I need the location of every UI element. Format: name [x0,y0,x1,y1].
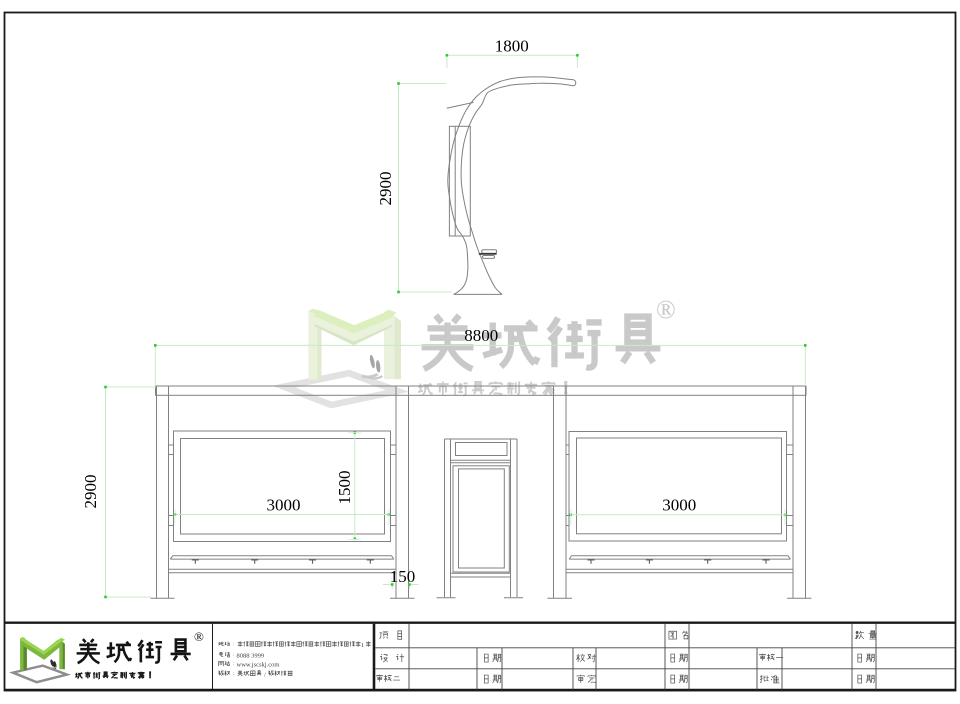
svg-text:www.jscskj.com: www.jscskj.com [237,662,280,669]
svg-text:1500: 1500 [335,471,354,505]
svg-text:/: / [264,671,266,678]
svg-text:3000: 3000 [267,496,301,515]
svg-text:150: 150 [390,567,416,586]
svg-text:3000: 3000 [662,496,696,515]
svg-text:®: ® [656,295,676,324]
svg-text:1: 1 [361,642,364,649]
svg-text:8800: 8800 [464,326,498,345]
svg-text:2900: 2900 [81,475,100,509]
svg-text:8088 3999: 8088 3999 [237,653,265,660]
svg-text:1800: 1800 [495,37,529,56]
svg-text:2900: 2900 [376,172,395,206]
svg-text:®: ® [194,629,204,644]
